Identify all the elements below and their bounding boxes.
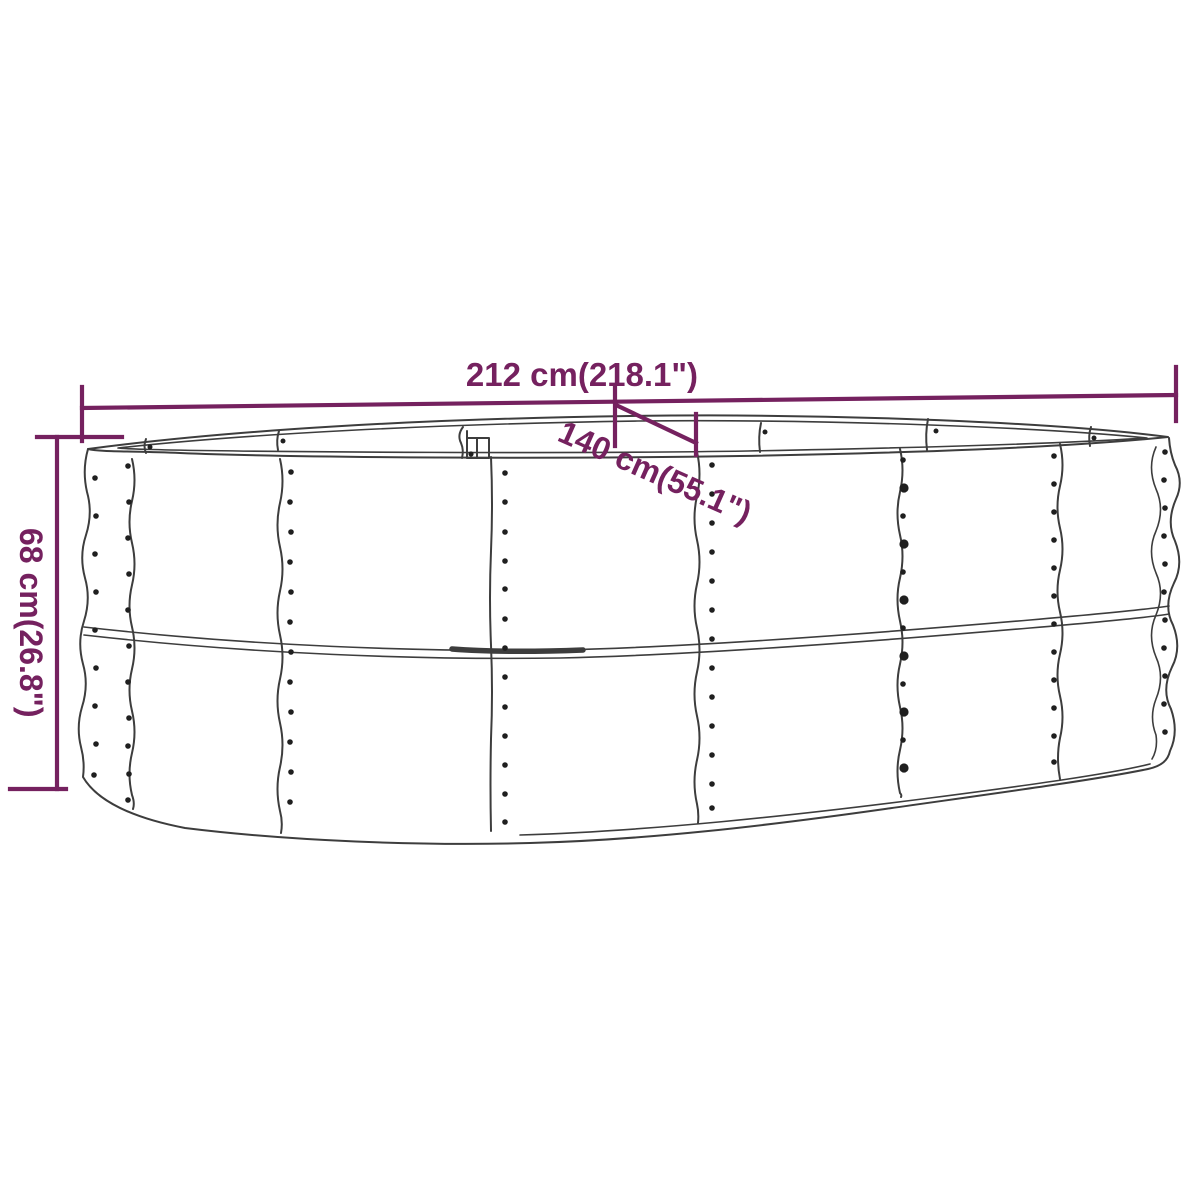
right-edge-inner [1152,447,1161,759]
bottom-inner-line [520,764,1150,835]
panel-seams [130,444,1063,833]
dimension-diagram-page: 212 cm(218.1") 140 cm(55.1") 68 cm(26.8"… [0,0,1200,1200]
depth-dimension-line [616,405,696,443]
width-dimension-label: 212 cm(218.1") [466,356,698,393]
rivets [91,429,1168,825]
depth-dimension-label: 140 cm(55.1") [553,414,757,531]
dimension-height: 68 cm(26.8") [10,437,122,789]
dimension-diagram: 212 cm(218.1") 140 cm(55.1") 68 cm(26.8"… [0,0,1200,1200]
band-weld-mark [452,649,583,651]
dimension-depth: 140 cm(55.1") [553,387,757,531]
mid-band [84,606,1169,658]
width-dimension-line [82,395,1176,408]
height-dimension-label: 68 cm(26.8") [13,528,49,718]
